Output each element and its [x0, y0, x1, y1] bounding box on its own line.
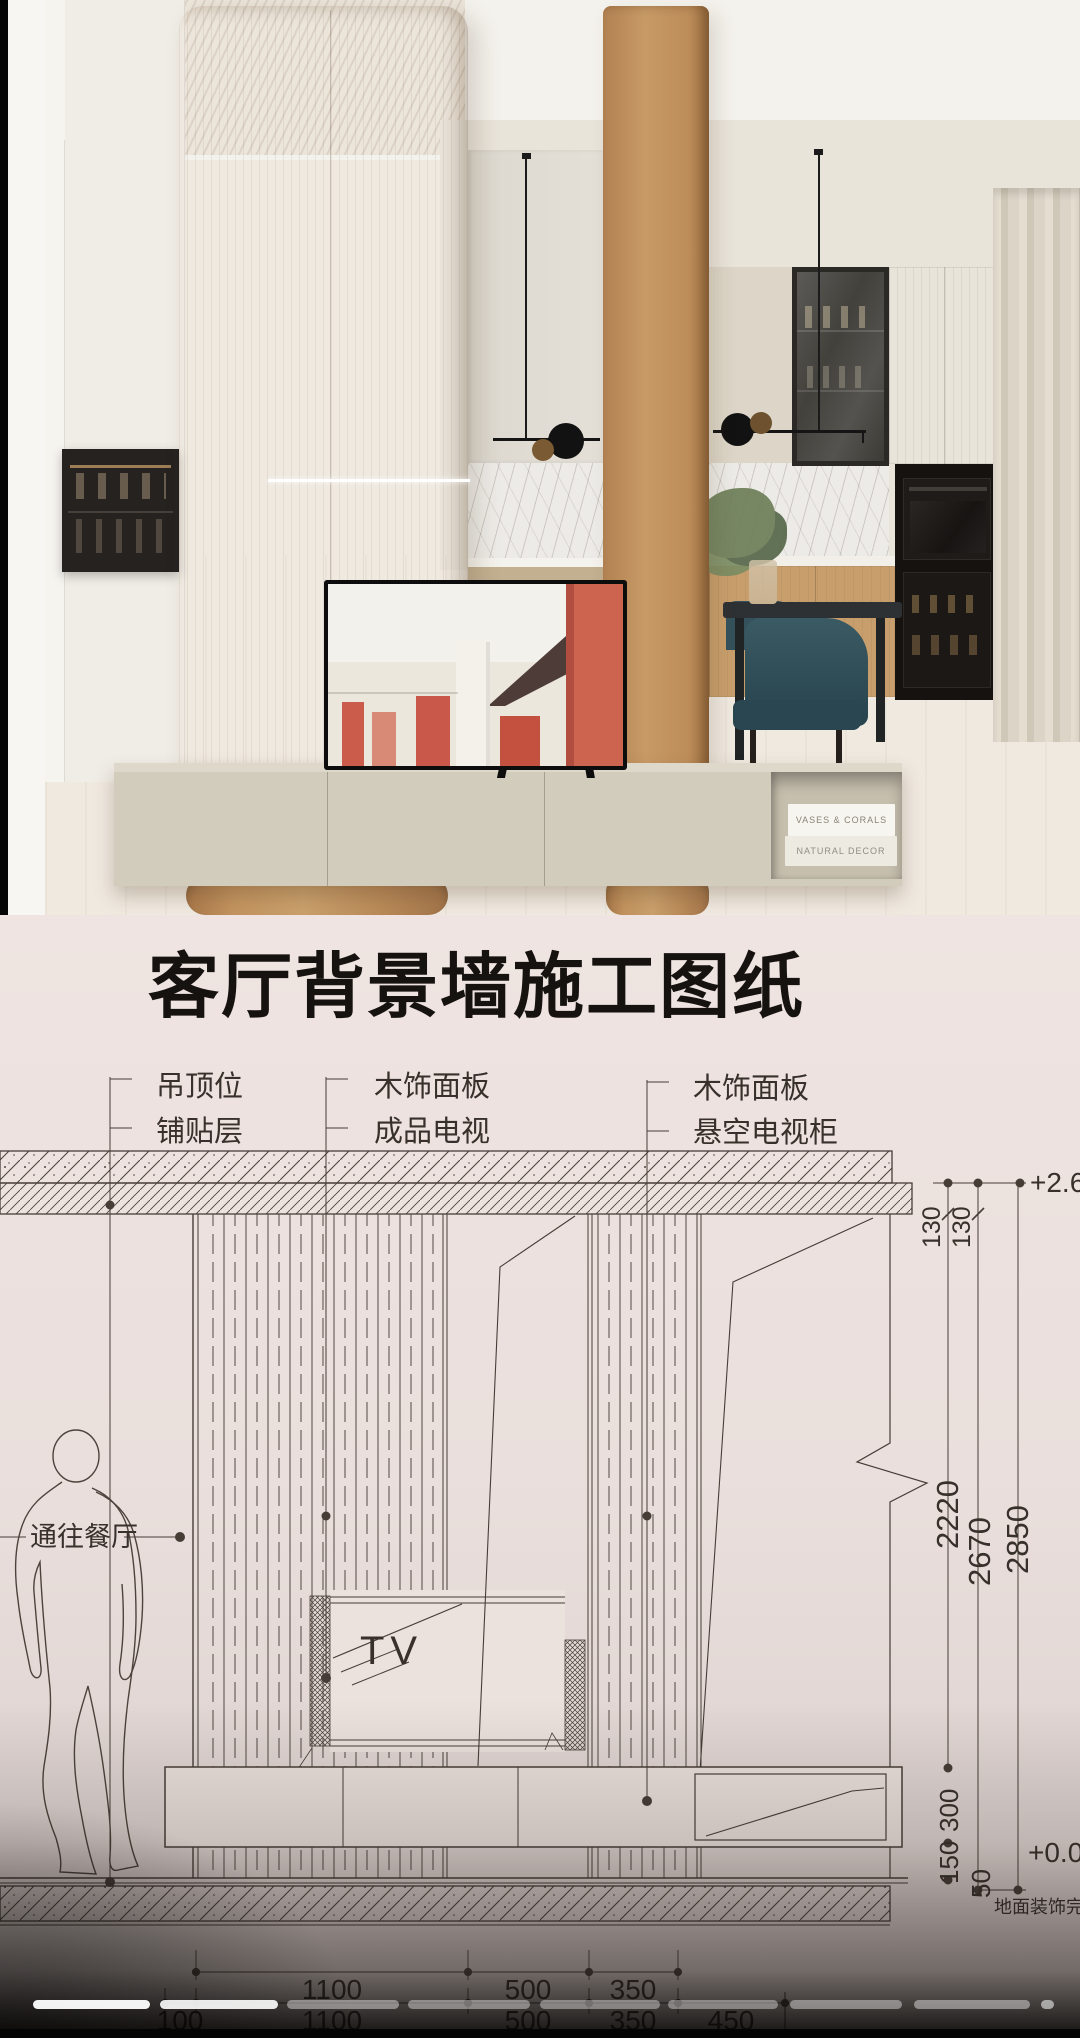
dim-2850: 2850: [1000, 1505, 1035, 1574]
video-frame: VASES & CORALS NATURAL DECOR: [0, 0, 1080, 2038]
progress-segment[interactable]: [540, 2000, 660, 2009]
dim-2220: 2220: [930, 1480, 965, 1549]
progress-segment[interactable]: [160, 2000, 278, 2009]
level-floor: +0.0: [1028, 1837, 1080, 1868]
dim-50: 50: [966, 1869, 996, 1898]
label-tv: TV: [360, 1629, 423, 1673]
label-floating-tv-cabinet: 悬空电视柜: [693, 1116, 838, 1149]
progress-segment[interactable]: [790, 2000, 902, 2009]
dim-2670: 2670: [962, 1517, 997, 1586]
progress-segment[interactable]: [33, 2000, 150, 2009]
label-finished-tv: 成品电视: [374, 1115, 490, 1148]
dim-130-b: 130: [948, 1206, 976, 1248]
progress-segment[interactable]: [1041, 2000, 1054, 2009]
dim-300: 300: [934, 1789, 964, 1832]
dim-130-a: 130: [918, 1206, 946, 1248]
progress-segment[interactable]: [408, 2000, 530, 2009]
drawing-linework: 吊顶位 铺贴层 木饰面板 成品电视 木饰面板 悬空电视柜 通往餐厅 TV +2.…: [0, 0, 1080, 2038]
dim-150: 150: [934, 1841, 964, 1884]
floor-finish-note: 地面装饰完: [994, 1897, 1080, 1917]
progress-segment[interactable]: [287, 2000, 399, 2009]
label-passage-to-dining: 通往餐厅: [30, 1522, 138, 1552]
label-wood-veneer: 木饰面板: [374, 1070, 490, 1103]
letterbox-bottom: [0, 2029, 1080, 2038]
progress-segment[interactable]: [914, 2000, 1030, 2009]
label-paving-layer: 铺贴层: [156, 1115, 243, 1148]
level-ceiling: +2.6: [1030, 1167, 1080, 1198]
progress-segment[interactable]: [668, 2000, 778, 2009]
video-progress-bar[interactable]: [0, 2000, 1080, 2009]
label-wood-veneer-2: 木饰面板: [693, 1072, 809, 1105]
label-ceiling-position: 吊顶位: [156, 1070, 243, 1103]
